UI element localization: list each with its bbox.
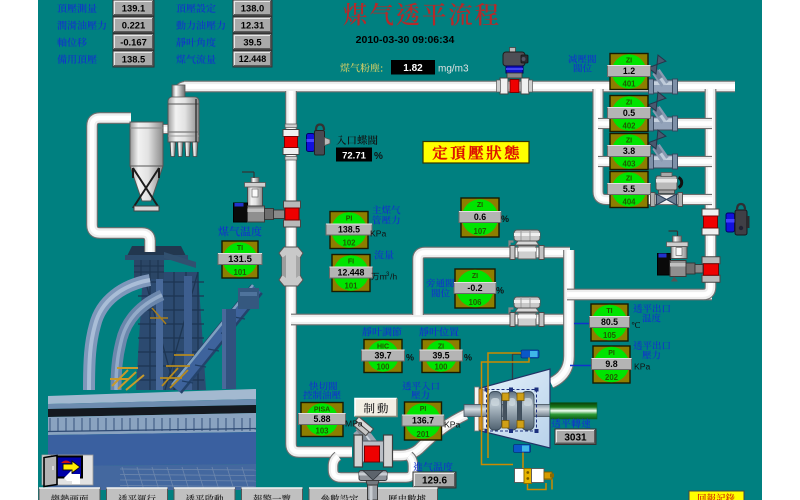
svg-text:1.2: 1.2 [623, 66, 635, 76]
svg-text:3031: 3031 [564, 432, 587, 443]
svg-text:100: 100 [434, 363, 448, 372]
svg-text:101: 101 [233, 268, 247, 277]
svg-text:MPa: MPa [345, 419, 363, 429]
svg-text:5.88: 5.88 [313, 414, 330, 424]
svg-text:℃: ℃ [631, 320, 641, 330]
svg-text:KPa: KPa [634, 362, 650, 372]
svg-text:PI: PI [608, 350, 615, 357]
svg-text:39.5: 39.5 [432, 351, 449, 361]
svg-text:39.7: 39.7 [374, 351, 391, 361]
svg-text:/h: /h [390, 272, 397, 282]
svg-text:131.5: 131.5 [228, 254, 252, 265]
svg-text:ZI: ZI [477, 202, 483, 209]
svg-text:0.221: 0.221 [122, 19, 145, 30]
svg-text:ZI: ZI [626, 100, 632, 107]
svg-text:HIC: HIC [377, 344, 389, 351]
svg-text:PI: PI [420, 406, 427, 413]
svg-text:136.7: 136.7 [412, 416, 434, 426]
svg-text:404: 404 [622, 198, 636, 207]
svg-text:%: % [501, 214, 509, 224]
svg-text:2010-03-30 09:06:34: 2010-03-30 09:06:34 [356, 34, 455, 46]
svg-text:105: 105 [603, 331, 617, 340]
svg-text:401: 401 [622, 80, 636, 89]
svg-text:KPa: KPa [444, 420, 460, 430]
svg-text:201: 201 [416, 430, 430, 439]
svg-text:KPa: KPa [370, 229, 386, 239]
svg-text:80.5: 80.5 [601, 317, 618, 327]
svg-text:9.8: 9.8 [605, 359, 617, 369]
svg-text:-0.2: -0.2 [467, 283, 482, 293]
svg-text:mg/m3: mg/m3 [438, 64, 469, 75]
svg-text:FI: FI [348, 259, 354, 266]
svg-text:129.6: 129.6 [422, 476, 447, 487]
svg-text:ZI: ZI [626, 58, 632, 65]
svg-text:0.6: 0.6 [474, 212, 486, 222]
svg-text:202: 202 [605, 373, 619, 382]
svg-text:138.5: 138.5 [122, 53, 145, 64]
svg-text:103: 103 [315, 427, 329, 436]
svg-text:139.1: 139.1 [122, 2, 145, 13]
svg-text:12.448: 12.448 [338, 268, 365, 278]
svg-text:403: 403 [622, 160, 636, 169]
svg-text:107: 107 [473, 227, 486, 236]
svg-text:0.5: 0.5 [623, 108, 635, 118]
svg-text:106: 106 [468, 298, 482, 307]
svg-text:101: 101 [344, 282, 358, 291]
svg-text:TI: TI [606, 308, 612, 315]
svg-text:-0.167: -0.167 [120, 36, 147, 47]
svg-text:%: % [464, 353, 472, 363]
svg-text:402: 402 [622, 122, 636, 131]
svg-text:万m: 万m [371, 272, 387, 282]
svg-text:39.5: 39.5 [243, 36, 261, 47]
svg-text:138.0: 138.0 [241, 2, 264, 13]
svg-text:%: % [496, 286, 504, 296]
svg-text:72.71: 72.71 [342, 151, 366, 162]
svg-text:ZI: ZI [472, 273, 478, 280]
svg-text:138.5: 138.5 [338, 225, 360, 235]
svg-text:5.5: 5.5 [623, 184, 635, 194]
svg-text:%: % [374, 151, 383, 162]
svg-text:TI: TI [237, 245, 243, 252]
svg-text:102: 102 [342, 239, 356, 248]
svg-text:12.448: 12.448 [239, 54, 267, 64]
svg-text:1.82: 1.82 [403, 63, 423, 74]
svg-text:PISA: PISA [314, 407, 330, 414]
svg-text:12.31: 12.31 [241, 19, 264, 30]
svg-text:3.8: 3.8 [623, 146, 635, 156]
svg-text:ZI: ZI [626, 138, 632, 145]
svg-text:ZI: ZI [438, 344, 444, 351]
svg-text:100: 100 [376, 363, 390, 372]
svg-text:ZI: ZI [626, 176, 632, 183]
svg-text:PI: PI [346, 216, 353, 223]
svg-text:%: % [406, 353, 414, 363]
